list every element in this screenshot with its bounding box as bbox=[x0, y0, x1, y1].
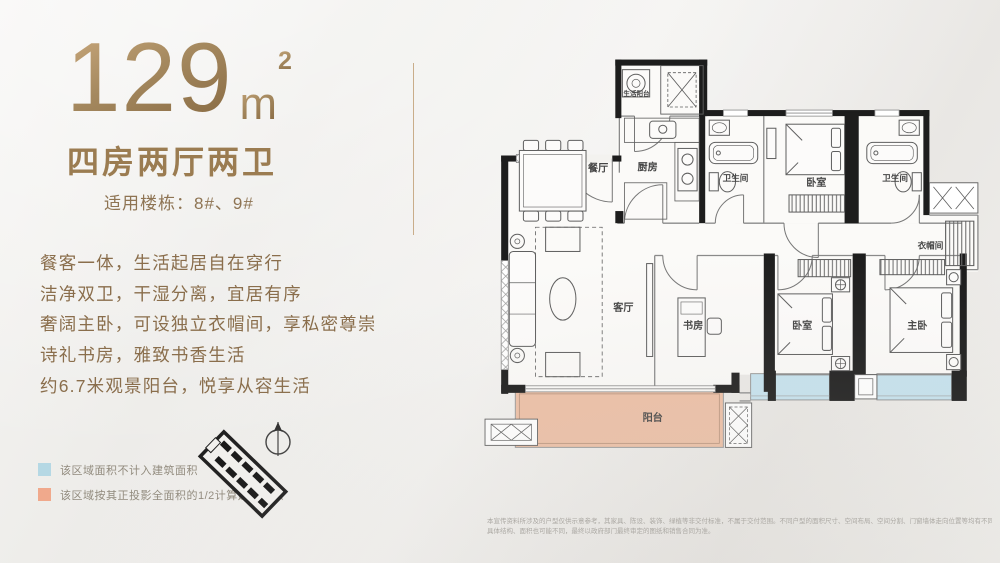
feature-line: 诗礼书房，雅致书香生活 bbox=[40, 339, 377, 370]
room-label-cloakroom: 衣帽间 bbox=[918, 239, 944, 250]
room-label-bedroom-top: 卧室 bbox=[806, 176, 826, 189]
room-label-master: 主卧 bbox=[907, 319, 927, 332]
feature-line: 餐客一体，生活起居自在穿行 bbox=[40, 247, 377, 278]
disclaimer-line: 具体结构、面积也可能不同，最终以政府部门最终审定的图纸和销售合同为准。 bbox=[487, 527, 992, 537]
area-unit: m bbox=[240, 84, 278, 125]
wardrobe-master bbox=[880, 260, 945, 275]
legend-label: 该区域面积不计入建筑面积 bbox=[60, 462, 198, 478]
room-label-dining: 餐厅 bbox=[587, 162, 608, 175]
room-label-living: 客厅 bbox=[612, 301, 633, 314]
room-label-bath-a: 卫生间 bbox=[723, 172, 749, 183]
room-label-service-balcony: 生活阳台 bbox=[623, 89, 650, 98]
cloakroom-wardrobe bbox=[946, 221, 974, 265]
site-plan bbox=[190, 408, 310, 533]
feature-list: 餐客一体，生活起居自在穿行 洁净双卫，干湿分离，宜居有序 奢阔主卧，可设独立衣帽… bbox=[40, 247, 377, 401]
area-superscript: 2 bbox=[278, 47, 292, 76]
compass-icon bbox=[266, 422, 290, 456]
niche-between-strips bbox=[855, 375, 877, 399]
ac-box-balcony-left bbox=[485, 419, 538, 445]
wardrobe-bottom-bedroom bbox=[798, 260, 851, 277]
poster-canvas: 129 m 2 四房两厅两卫 适用楼栋：8#、9# 餐客一体，生活起居自在穿行 … bbox=[0, 0, 1000, 563]
feature-line: 洁净双卫，干湿分离，宜居有序 bbox=[40, 278, 377, 309]
wardrobe-top-bedroom bbox=[789, 195, 845, 212]
room-label-bath-b: 卫生间 bbox=[882, 172, 908, 183]
dining-table bbox=[519, 140, 586, 221]
area-number: 129 bbox=[66, 30, 233, 124]
disclaimer: 本宣传资料所涉及的户型仅供示意参考，其家具、陈设、装饰、绿植等非交付标准，不属于… bbox=[487, 517, 992, 536]
ac-platform-right bbox=[929, 183, 977, 213]
applicable-buildings: 适用楼栋：8#、9# bbox=[104, 189, 254, 214]
room-label-balcony: 阳台 bbox=[643, 411, 663, 424]
feature-line: 约6.7米观景阳台，悦享从容生活 bbox=[40, 370, 377, 401]
disclaimer-line: 本宣传资料所涉及的户型仅供示意参考，其家具、陈设、装饰、绿植等非交付标准，不属于… bbox=[487, 517, 992, 527]
floor-plan: 餐厅 厨房 生活阳台 卫生间 卧室 卫生间 衣帽间 客厅 书房 卧室 主卧 阳台 bbox=[483, 53, 988, 458]
ac-box-bottom-center bbox=[725, 403, 751, 447]
site-plan-building-strip bbox=[199, 431, 286, 517]
layout-type-title: 四房两厅两卫 bbox=[67, 137, 277, 183]
feature-line: 奢阔主卧，可设独立衣帽间，享私密尊崇 bbox=[40, 309, 377, 340]
legend-swatch-blue bbox=[38, 463, 51, 476]
vertical-divider bbox=[413, 63, 414, 235]
legend-swatch-orange bbox=[38, 488, 51, 501]
room-label-bedroom-bottom: 卧室 bbox=[792, 319, 812, 332]
room-label-kitchen: 厨房 bbox=[638, 161, 658, 174]
tv-cabinet bbox=[647, 264, 653, 357]
area-title: 129 m 2 bbox=[66, 30, 291, 124]
balcony-area bbox=[515, 390, 723, 448]
room-label-study: 书房 bbox=[683, 319, 703, 332]
